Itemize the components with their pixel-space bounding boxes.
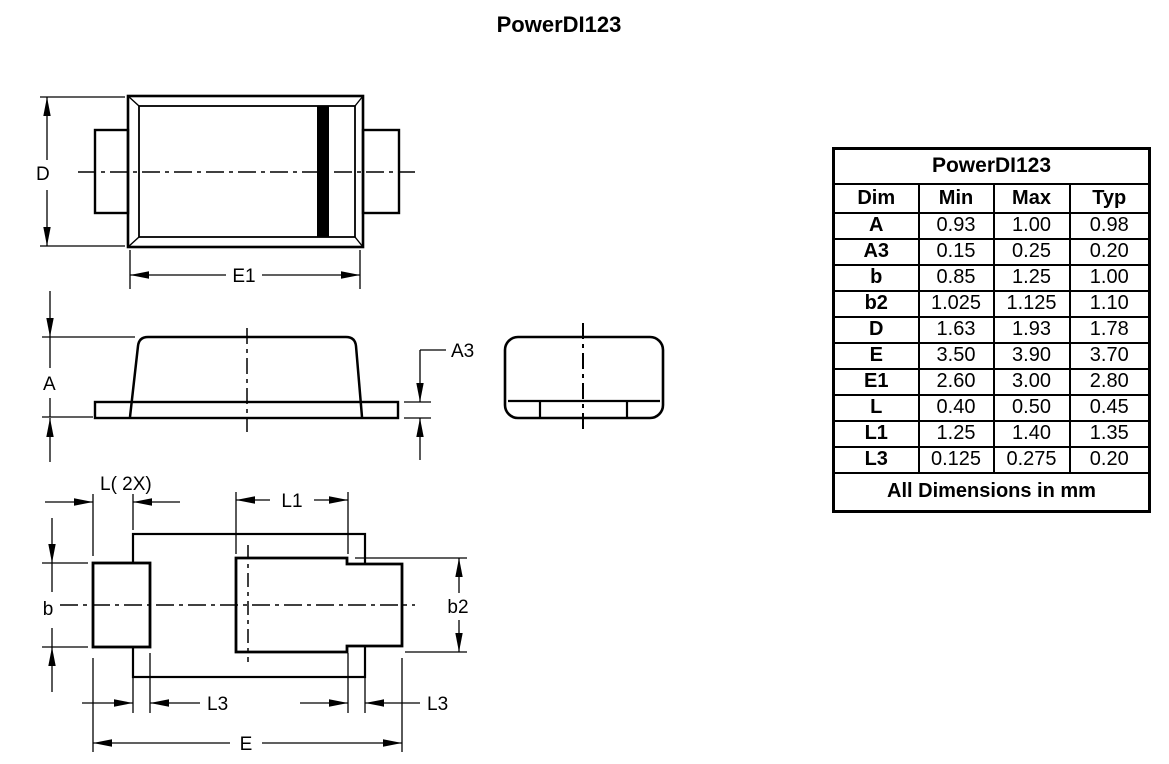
table-row-a: A 0.93 1.00 0.98: [834, 213, 1150, 239]
dim-label-b: b: [43, 599, 54, 620]
cell-typ: 0.45: [1070, 395, 1150, 421]
cell-typ: 3.70: [1070, 343, 1150, 369]
table-row-e1: E1 2.60 3.00 2.80: [834, 369, 1150, 395]
table-row-e: E 3.50 3.90 3.70: [834, 343, 1150, 369]
table-row-l: L 0.40 0.50 0.45: [834, 395, 1150, 421]
cell-dim: b: [834, 265, 919, 291]
cell-typ: 0.20: [1070, 447, 1150, 473]
table-row-l3: L3 0.125 0.275 0.20: [834, 447, 1150, 473]
dim-label-e1: E1: [232, 266, 255, 287]
cell-max: 1.25: [994, 265, 1070, 291]
cell-min: 2.60: [919, 369, 994, 395]
cell-max: 1.93: [994, 317, 1070, 343]
cell-dim: A3: [834, 239, 919, 265]
col-header-min: Min: [919, 184, 994, 213]
dim-label-e: E: [240, 734, 253, 755]
side-view-body: [130, 337, 362, 417]
cell-min: 1.63: [919, 317, 994, 343]
cell-min: 0.15: [919, 239, 994, 265]
dim-label-a3: A3: [451, 341, 474, 362]
cell-min: 0.40: [919, 395, 994, 421]
dim-label-l1: L1: [281, 491, 302, 512]
dim-label-a: A: [43, 374, 56, 395]
dimensions-table: PowerDI123 Dim Min Max Typ A 0.93 1.00 0…: [832, 147, 1151, 513]
cell-typ: 1.35: [1070, 421, 1150, 447]
cell-min: 3.50: [919, 343, 994, 369]
cell-min: 0.93: [919, 213, 994, 239]
cell-typ: 1.78: [1070, 317, 1150, 343]
col-header-dim: Dim: [834, 184, 919, 213]
cell-min: 1.025: [919, 291, 994, 317]
cell-typ: 0.98: [1070, 213, 1150, 239]
cell-max: 1.00: [994, 213, 1070, 239]
cell-max: 0.25: [994, 239, 1070, 265]
col-header-max: Max: [994, 184, 1070, 213]
cell-dim: L1: [834, 421, 919, 447]
datasheet-page: { "page_title": "PowerDI123", "colors": …: [0, 0, 1169, 764]
cell-max: 3.90: [994, 343, 1070, 369]
dim-label-l3-right: L3: [427, 694, 448, 715]
table-row-l1: L1 1.25 1.40 1.35: [834, 421, 1150, 447]
cell-dim: L3: [834, 447, 919, 473]
cell-typ: 0.20: [1070, 239, 1150, 265]
table-row-b: b 0.85 1.25 1.00: [834, 265, 1150, 291]
cell-dim: E1: [834, 369, 919, 395]
cell-min: 0.85: [919, 265, 994, 291]
cell-max: 3.00: [994, 369, 1070, 395]
cell-min: 0.125: [919, 447, 994, 473]
cell-max: 0.50: [994, 395, 1070, 421]
cell-min: 1.25: [919, 421, 994, 447]
dimensions-table-container: PowerDI123 Dim Min Max Typ A 0.93 1.00 0…: [832, 147, 1151, 513]
cell-max: 0.275: [994, 447, 1070, 473]
cell-typ: 1.10: [1070, 291, 1150, 317]
dimension-a3: [404, 350, 446, 460]
cell-dim: b2: [834, 291, 919, 317]
table-title: PowerDI123: [834, 149, 1150, 185]
cell-dim: L: [834, 395, 919, 421]
cell-dim: A: [834, 213, 919, 239]
cell-dim: E: [834, 343, 919, 369]
table-footer-note: All Dimensions in mm: [834, 473, 1150, 512]
table-row-b2: b2 1.025 1.125 1.10: [834, 291, 1150, 317]
side-view: A A3: [42, 291, 474, 462]
table-row-d: D 1.63 1.93 1.78: [834, 317, 1150, 343]
dim-label-b2: b2: [447, 597, 468, 618]
top-view: D E1: [36, 96, 415, 289]
cell-max: 1.40: [994, 421, 1070, 447]
dim-label-l3-left: L3: [207, 694, 228, 715]
dim-label-d: D: [36, 164, 50, 185]
cell-typ: 1.00: [1070, 265, 1150, 291]
end-view: [505, 323, 663, 433]
dimension-a: [42, 291, 135, 462]
dim-label-l: L( 2X): [100, 474, 152, 495]
col-header-typ: Typ: [1070, 184, 1150, 213]
table-row-a3: A3 0.15 0.25 0.20: [834, 239, 1150, 265]
cell-max: 1.125: [994, 291, 1070, 317]
cell-dim: D: [834, 317, 919, 343]
bottom-view: L( 2X) L1 b b2: [42, 474, 469, 755]
cell-typ: 2.80: [1070, 369, 1150, 395]
